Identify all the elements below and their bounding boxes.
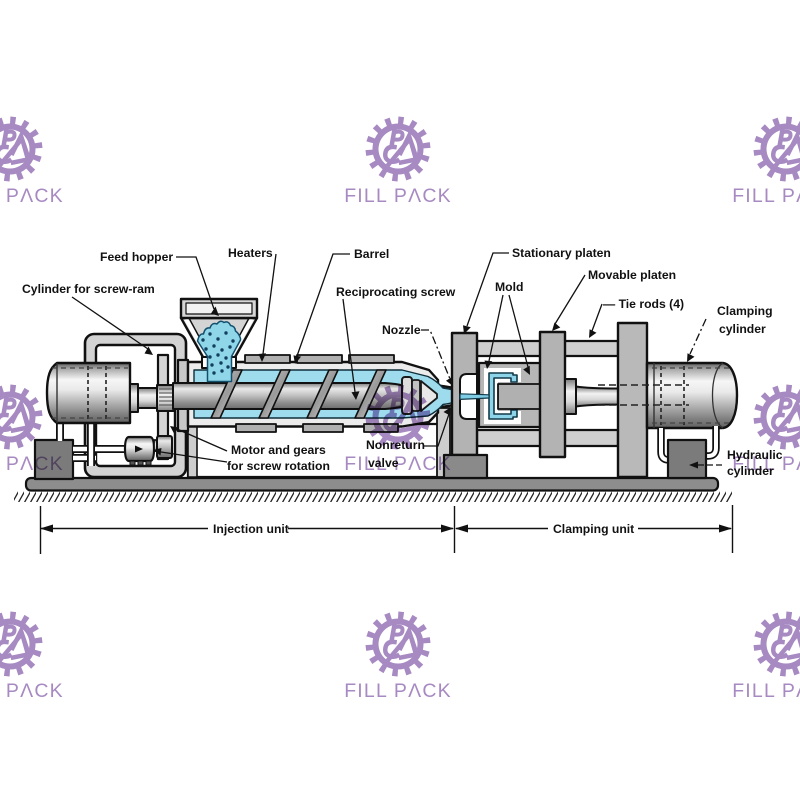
svg-text:Feed hopper: Feed hopper: [100, 250, 173, 264]
svg-text:— Tie rods (4): — Tie rods (4): [603, 297, 684, 311]
svg-text:Clamping unit: Clamping unit: [553, 522, 634, 536]
svg-text:Barrel: Barrel: [354, 247, 389, 261]
svg-text:cylinder: cylinder: [719, 322, 766, 336]
svg-text:Clamping: Clamping: [717, 304, 773, 318]
svg-text:Nozzle: Nozzle: [382, 323, 421, 337]
svg-text:Mold: Mold: [495, 280, 523, 294]
svg-text:Stationary platen: Stationary platen: [512, 246, 611, 260]
svg-text:Cylinder for screw-ram: Cylinder for screw-ram: [22, 282, 155, 296]
svg-text:Movable platen: Movable platen: [588, 268, 676, 282]
svg-text:Motor and gears: Motor and gears: [231, 443, 326, 457]
svg-text:for screw rotation: for screw rotation: [227, 459, 330, 473]
svg-text:Injection unit: Injection unit: [213, 522, 289, 536]
svg-text:Heaters: Heaters: [228, 246, 273, 260]
svg-text:Reciprocating screw: Reciprocating screw: [336, 285, 456, 299]
